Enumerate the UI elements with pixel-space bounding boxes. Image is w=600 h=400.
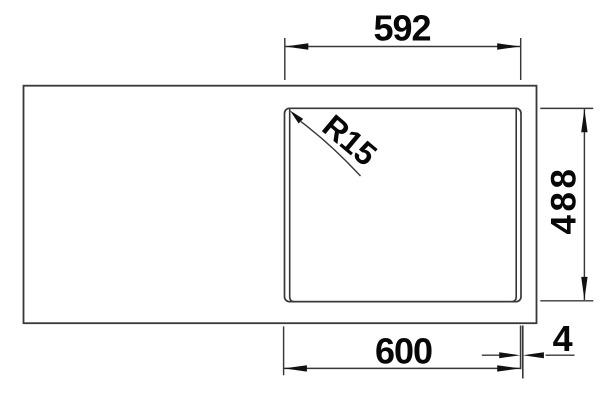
svg-text:488: 488: [545, 166, 584, 235]
svg-text:600: 600: [375, 330, 432, 371]
svg-text:4: 4: [553, 318, 573, 359]
svg-text:592: 592: [373, 8, 430, 49]
